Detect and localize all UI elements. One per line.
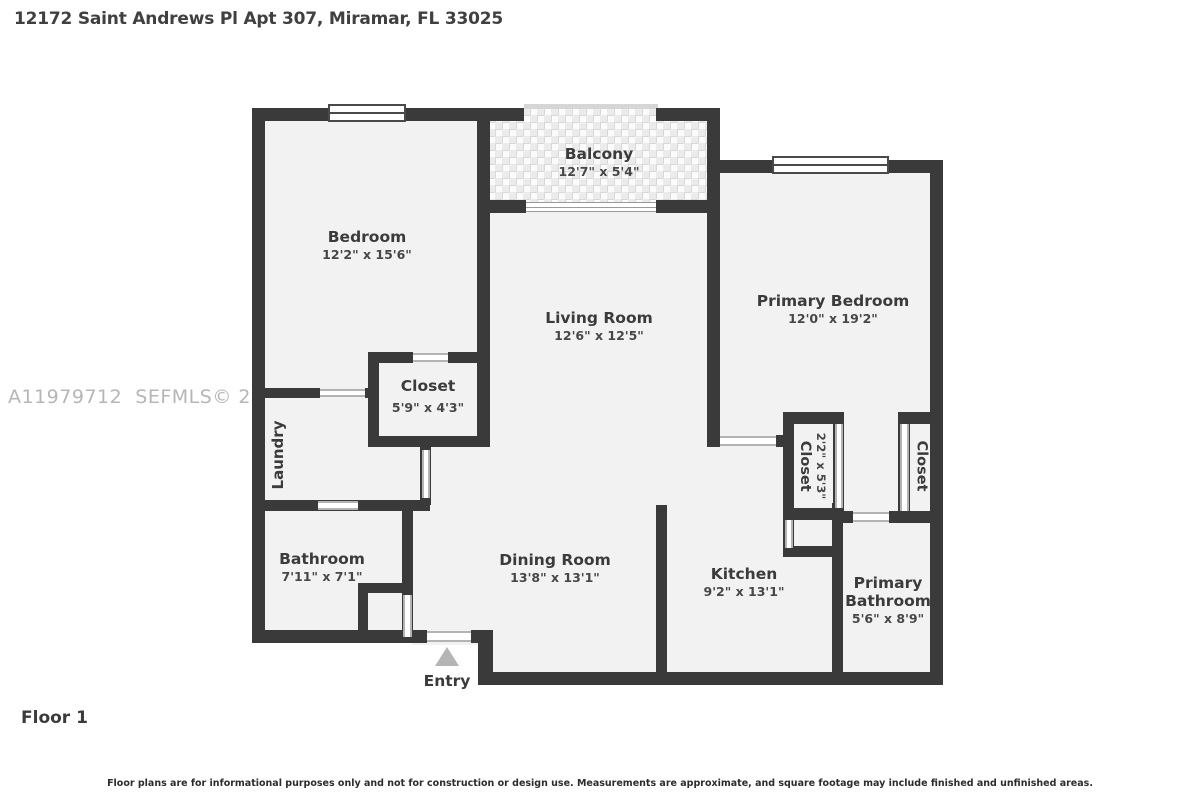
room-name: Closet [796, 433, 813, 499]
room-dims: 9'2" x 13'1" [704, 583, 785, 600]
floor-plan: Bedroom 12'2" x 15'6" Balcony 12'7" x 5'… [0, 0, 1200, 800]
room-label-primary-bathroom: Primary Bathroom 5'6" x 8'9" [836, 574, 940, 627]
wall [656, 505, 667, 685]
closet-door-opening [900, 424, 909, 511]
wall [486, 200, 526, 213]
wall [707, 108, 720, 447]
room-dims: 13'8" x 13'1" [499, 569, 610, 586]
door-opening [785, 520, 793, 548]
room-dims: 5'9" x 4'3" [392, 399, 464, 416]
wall [265, 388, 320, 398]
wall [358, 583, 412, 593]
primary-bathroom-door-opening [853, 512, 889, 522]
room-name: Bathroom [279, 550, 365, 568]
room-label-laundry: Laundry [269, 421, 287, 490]
balcony-railing [524, 104, 658, 109]
room-name: Bedroom [322, 228, 412, 246]
room-label-closet: Closet 5'9" x 4'3" [392, 377, 464, 416]
room-name: Primary Bedroom [757, 292, 910, 310]
window [772, 156, 889, 174]
room-name: Living Room [545, 309, 653, 327]
room-label-kitchen: Kitchen 9'2" x 13'1" [704, 565, 785, 600]
room-name: Closet [913, 441, 930, 492]
door-opening [413, 353, 448, 362]
wall [656, 200, 720, 213]
door-opening [403, 595, 412, 637]
closet-door-opening [835, 424, 843, 508]
room-dims: 12'0" x 19'2" [757, 310, 910, 327]
room-label-living-room: Living Room 12'6" x 12'5" [545, 309, 653, 344]
room-dims: 5'6" x 8'9" [836, 610, 940, 627]
room-name: Closet [392, 377, 464, 395]
floor-plan-page: { "header": { "title": "12172 Saint Andr… [0, 0, 1200, 800]
entry-door-opening [427, 631, 471, 642]
room-name: Primary Bathroom [836, 574, 940, 610]
wall [252, 630, 427, 643]
wall [783, 412, 794, 522]
window [328, 104, 406, 122]
room-dims: 12'2" x 15'6" [322, 246, 412, 263]
room-name: Balcony [559, 145, 640, 163]
door-opening [318, 501, 358, 510]
balcony-sliding-door [526, 202, 656, 212]
room-label-bathroom: Bathroom 7'11" x 7'1" [279, 550, 365, 585]
door-opening [320, 389, 365, 397]
room-label-bedroom: Bedroom 12'2" x 15'6" [322, 228, 412, 263]
wall [478, 630, 493, 680]
wall [477, 118, 490, 358]
wall [365, 388, 379, 398]
room-dims: 7'11" x 7'1" [279, 568, 365, 585]
primary-bedroom-door-opening [720, 436, 776, 446]
room-name: Dining Room [499, 551, 610, 569]
wall [898, 511, 943, 523]
room-name: Kitchen [704, 565, 785, 583]
wall [252, 108, 265, 643]
room-dims: 2'2" x 5'3" [813, 433, 828, 499]
room-label-closet-primary-left: Closet 2'2" x 5'3" [796, 433, 828, 499]
room-dims: 12'7" x 5'4" [559, 163, 640, 180]
room-label-closet-primary-right: Closet [913, 441, 930, 492]
wall [889, 511, 898, 523]
room-dims: 12'6" x 12'5" [545, 327, 653, 344]
entry-label: Entry [424, 672, 471, 690]
wall [486, 108, 524, 121]
room-label-dining-room: Dining Room 13'8" x 13'1" [499, 551, 610, 586]
wall [368, 352, 379, 447]
wall [478, 672, 943, 685]
door-opening [422, 450, 430, 498]
wall [477, 352, 490, 447]
entry-arrow-icon [435, 647, 459, 666]
room-label-primary-bedroom: Primary Bedroom 12'0" x 19'2" [757, 292, 910, 327]
room-label-balcony: Balcony 12'7" x 5'4" [559, 145, 640, 180]
